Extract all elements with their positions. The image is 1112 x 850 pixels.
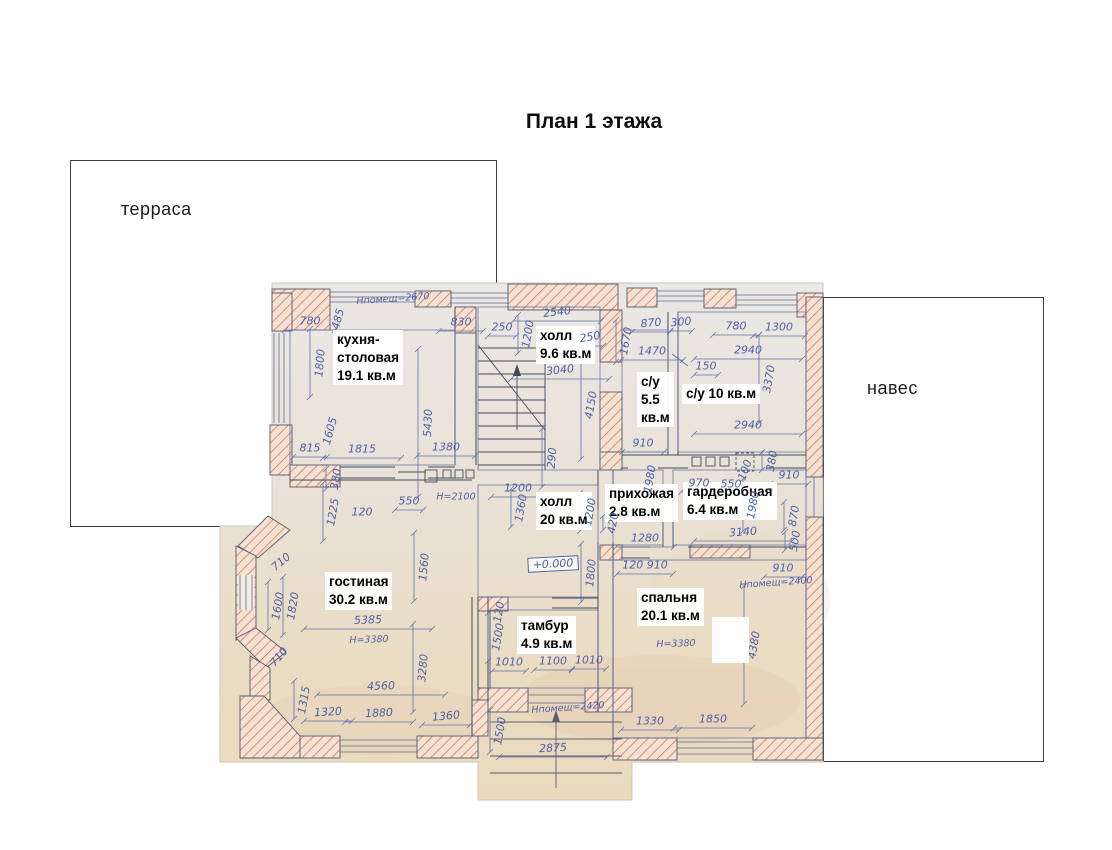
page-title: План 1 этажа	[526, 110, 662, 134]
whiteout-patch	[712, 617, 749, 663]
scanned-floor-plan-page: План 1 этажа терраса навес	[0, 0, 1112, 850]
